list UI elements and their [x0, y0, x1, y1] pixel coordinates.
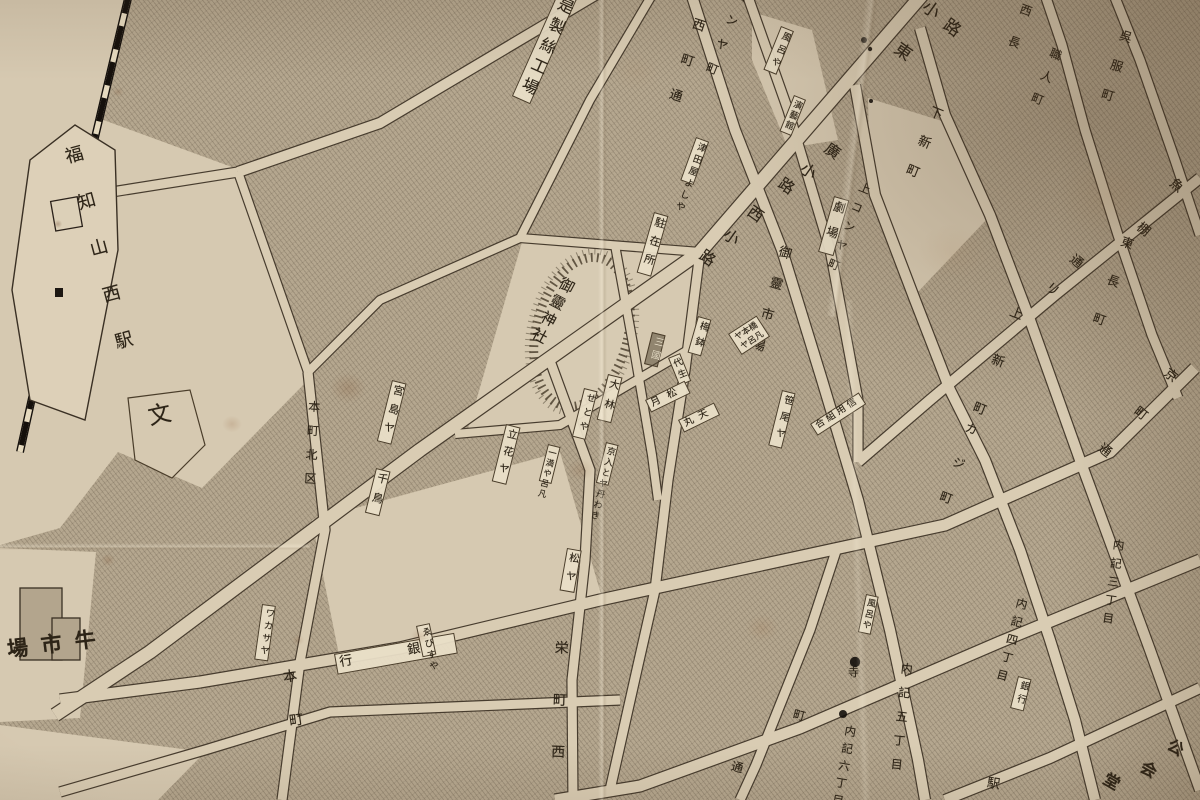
school-symbol: 文	[146, 401, 173, 428]
old-japanese-city-map-photo: 福知山西駅 本町北区 本町 栄町西 西町通 コンヤ町 上コンヤ町 御靈市場 下新…	[0, 0, 1200, 800]
partial-label-tera: 寺	[848, 668, 859, 679]
station-structure	[55, 288, 63, 297]
partial-label-eki: 駅	[986, 776, 1001, 791]
